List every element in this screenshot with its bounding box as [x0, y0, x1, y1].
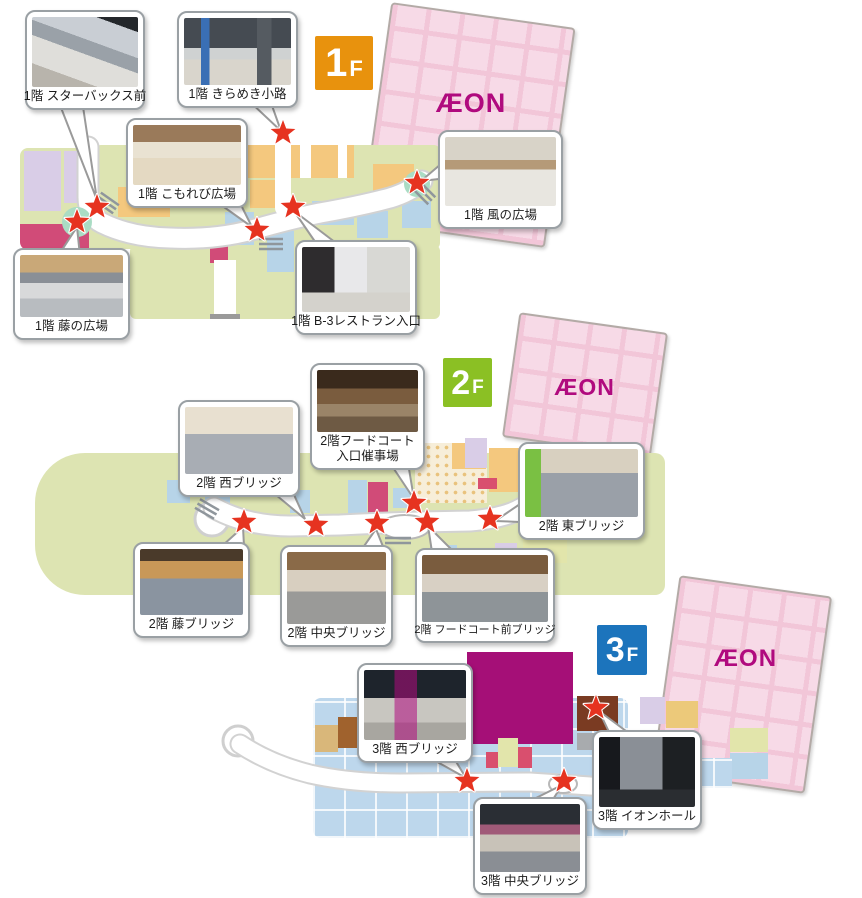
callout-label: 2階 中央ブリッジ — [288, 624, 386, 643]
callout-3f-nishi-bridge[interactable]: 3階 西ブリッジ — [357, 663, 473, 763]
callout-label: 2階 東ブリッジ — [539, 517, 624, 536]
callout-label: 3階 イオンホール — [598, 807, 696, 826]
photo-1f-kaze — [445, 137, 556, 206]
callout-label: 1階 こもれび広場 — [138, 185, 236, 204]
photo-3f-aeon-hall — [599, 737, 695, 807]
photo-2f-nishi-bridge — [185, 407, 293, 474]
callout-2f-chuo-bridge[interactable]: 2階 中央ブリッジ — [280, 545, 393, 647]
photo-1f-kirameki — [184, 18, 291, 85]
photo-2f-higashi-bridge — [525, 449, 638, 517]
photo-3f-chuo-bridge — [480, 804, 580, 872]
callout-label: 2階 藤ブリッジ — [149, 615, 234, 634]
escalator-icon — [385, 538, 411, 543]
photo-2f-fuji-bridge — [140, 549, 243, 615]
callout-label: 1階 風の広場 — [464, 206, 537, 225]
callout-label: 2階 フードコート前ブリッジ — [414, 622, 555, 639]
callout-1f-fuji[interactable]: 1階 藤の広場 — [13, 248, 130, 340]
callout-label: 3階 西ブリッジ — [372, 740, 457, 759]
callout-3f-chuo-bridge[interactable]: 3階 中央ブリッジ — [473, 797, 587, 895]
callout-label: 1階 藤の広場 — [35, 317, 108, 336]
callout-1f-kirameki[interactable]: 1階 きらめき小路 — [177, 11, 298, 108]
callout-2f-nishi-bridge[interactable]: 2階 西ブリッジ — [178, 400, 300, 497]
floor-badge-2f: 2F — [443, 358, 492, 407]
callout-label: 2階フードコート 入口催事場 — [320, 432, 414, 466]
photo-1f-fuji — [20, 255, 123, 317]
floor-badge-3f: 3F — [597, 625, 647, 675]
callout-2f-fuji-bridge[interactable]: 2階 藤ブリッジ — [133, 542, 250, 638]
callout-1f-komorebi[interactable]: 1階 こもれび広場 — [126, 118, 248, 208]
mall-floor-guide-map: ÆON ÆON ÆON — [0, 0, 862, 898]
photo-2f-foodcourt-mae-bridge — [422, 555, 548, 622]
photo-3f-nishi-bridge — [364, 670, 466, 740]
map-star-marker-2f[interactable] — [402, 490, 427, 514]
photo-1f-komorebi — [133, 125, 241, 185]
callout-3f-aeon-hall[interactable]: 3階 イオンホール — [592, 730, 702, 830]
callout-2f-foodcourt-mae-bridge[interactable]: 2階 フードコート前ブリッジ — [415, 548, 555, 643]
callout-2f-higashi-bridge[interactable]: 2階 東ブリッジ — [518, 442, 645, 540]
photo-2f-foodcourt-entrance — [317, 370, 418, 432]
callout-1f-b3-restaurant[interactable]: 1階 B-3レストラン入口 — [295, 240, 417, 335]
callout-label: 3階 中央ブリッジ — [481, 872, 579, 891]
callout-label: 1階 スターバックス前 — [24, 87, 146, 106]
photo-1f-b3-restaurant — [302, 247, 410, 312]
callout-label: 1階 B-3レストラン入口 — [291, 312, 421, 331]
callout-1f-starbucks[interactable]: 1階 スターバックス前 — [25, 10, 145, 110]
callout-label: 1階 きらめき小路 — [189, 85, 287, 104]
photo-2f-chuo-bridge — [287, 552, 386, 624]
callout-label: 2階 西ブリッジ — [196, 474, 281, 493]
photo-1f-starbucks — [32, 17, 138, 87]
floor-badge-1f: 1F — [315, 36, 373, 90]
callout-1f-kaze[interactable]: 1階 風の広場 — [438, 130, 563, 229]
callout-2f-foodcourt-entrance[interactable]: 2階フードコート 入口催事場 — [310, 363, 425, 470]
